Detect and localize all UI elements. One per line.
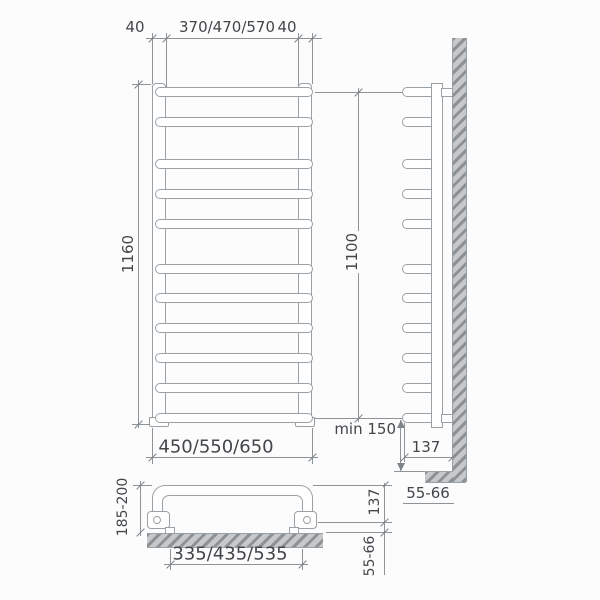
floor-section xyxy=(425,471,453,482)
ext-line xyxy=(394,471,425,472)
ext-line xyxy=(166,33,167,88)
floor-bottom-line xyxy=(425,482,466,483)
dim-label-total-width: 450/550/650 xyxy=(158,437,273,458)
front-rung xyxy=(155,87,313,97)
ext-line xyxy=(132,424,150,425)
top-wall-bracket xyxy=(441,88,453,97)
side-rail xyxy=(431,83,443,428)
ext-line xyxy=(132,84,151,85)
ext-line xyxy=(133,485,152,486)
dim-label-rung-span: 1100 xyxy=(343,231,361,273)
ext-line xyxy=(170,549,171,570)
front-rung xyxy=(155,323,313,333)
dim-label-floor-clearance: min 150 xyxy=(330,420,396,438)
bottom-wall-bracket xyxy=(441,414,453,423)
ext-line xyxy=(312,33,313,84)
dim-label-depth-range: 185-200 xyxy=(115,476,131,539)
dim-label-wall-gap: 55-66 xyxy=(406,484,450,502)
front-rung xyxy=(155,353,313,363)
front-right-rail xyxy=(298,83,312,426)
front-rung xyxy=(155,117,313,127)
ext-line xyxy=(152,428,153,464)
front-rung xyxy=(155,413,313,423)
dim-label-top-width: 370/470/570 xyxy=(179,18,275,36)
ext-line xyxy=(312,428,313,464)
detail-wall-face-line xyxy=(147,533,323,534)
underline xyxy=(403,503,454,504)
ext-line xyxy=(302,549,303,570)
floor-top-line xyxy=(425,471,453,472)
dim-label-top-right-offset: 40 xyxy=(277,18,296,36)
dim-label-top-left-offset: 40 xyxy=(125,18,144,36)
front-rung xyxy=(155,219,313,229)
dim-label-total-height: 1160 xyxy=(119,233,137,275)
front-rung xyxy=(155,383,313,393)
dim-label-depth: 137 xyxy=(412,438,441,456)
front-rung xyxy=(155,159,313,169)
dim-line-height xyxy=(138,80,139,428)
dim-line-depth xyxy=(404,457,452,458)
dim-line-detail-right xyxy=(384,483,385,575)
front-rung xyxy=(155,189,313,199)
wall-section xyxy=(452,38,466,482)
left-screw-hole xyxy=(153,516,161,524)
right-screw-hole xyxy=(303,516,311,524)
dim-label-detail-wall-gap: 55-66 xyxy=(362,534,378,579)
ext-line xyxy=(318,522,392,523)
front-rung xyxy=(155,293,313,303)
arrow-down xyxy=(397,463,405,471)
front-rung xyxy=(155,264,313,274)
front-left-rail xyxy=(152,83,166,426)
dim-label-detail-depth: 137 xyxy=(367,487,383,518)
tube-inner-outline xyxy=(162,495,303,529)
ext-line xyxy=(152,33,153,84)
ext-line xyxy=(298,33,299,88)
dim-label-bracket-spacing: 335/435/535 xyxy=(172,544,287,565)
towel-radiator-dimension-drawing: 40 370/470/570 40 1160 450/550/650 1100 xyxy=(0,0,600,600)
wall-back-line xyxy=(466,38,467,482)
dim-line-depth-range xyxy=(140,481,141,536)
